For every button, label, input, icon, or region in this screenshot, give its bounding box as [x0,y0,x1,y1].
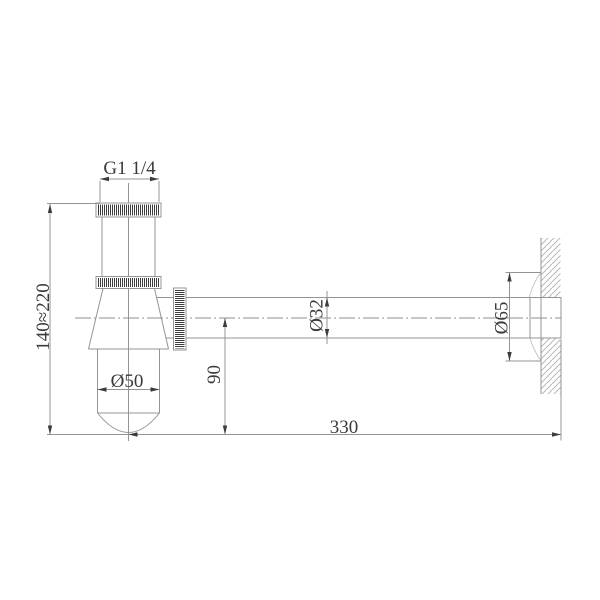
thread-dimension: G1 1/4 [100,158,159,202]
arrowhead [507,273,511,282]
inlet-nut [96,203,161,217]
cup-diameter-dimension: Ø50 [98,371,160,392]
arrowhead [48,426,52,435]
arrowhead [151,387,160,391]
thread-ext-lines [100,181,159,202]
dim-drop-label: 90 [204,365,225,384]
dim-length-label: 330 [330,417,359,438]
arrowhead [98,387,107,391]
height-dimension: 140≈220 [33,204,100,435]
outlet-nut-knurl [175,290,185,349]
trap-nut-knurl [97,278,160,287]
dim-thread-label: G1 1/4 [103,158,156,179]
dim-flange-diameter-label: Ø65 [492,302,513,335]
outlet-nut [174,288,187,350]
arrowhead [48,204,52,213]
technical-drawing-page: G1 1/4 140≈220 Ø50 90 Ø32 Ø65 [0,0,600,600]
dim-pipe-diameter-label: Ø32 [307,299,328,332]
trap-nut [96,277,161,289]
dim-height-label: 140≈220 [33,283,54,350]
arrowhead [223,426,227,435]
bottle-trap-drawing: G1 1/4 140≈220 Ø50 90 Ø32 Ø65 [0,0,600,600]
dim-cup-diameter-label: Ø50 [111,371,144,392]
arrowhead [507,352,511,361]
inlet-nut-knurl [97,205,160,216]
arrowhead [552,432,561,436]
